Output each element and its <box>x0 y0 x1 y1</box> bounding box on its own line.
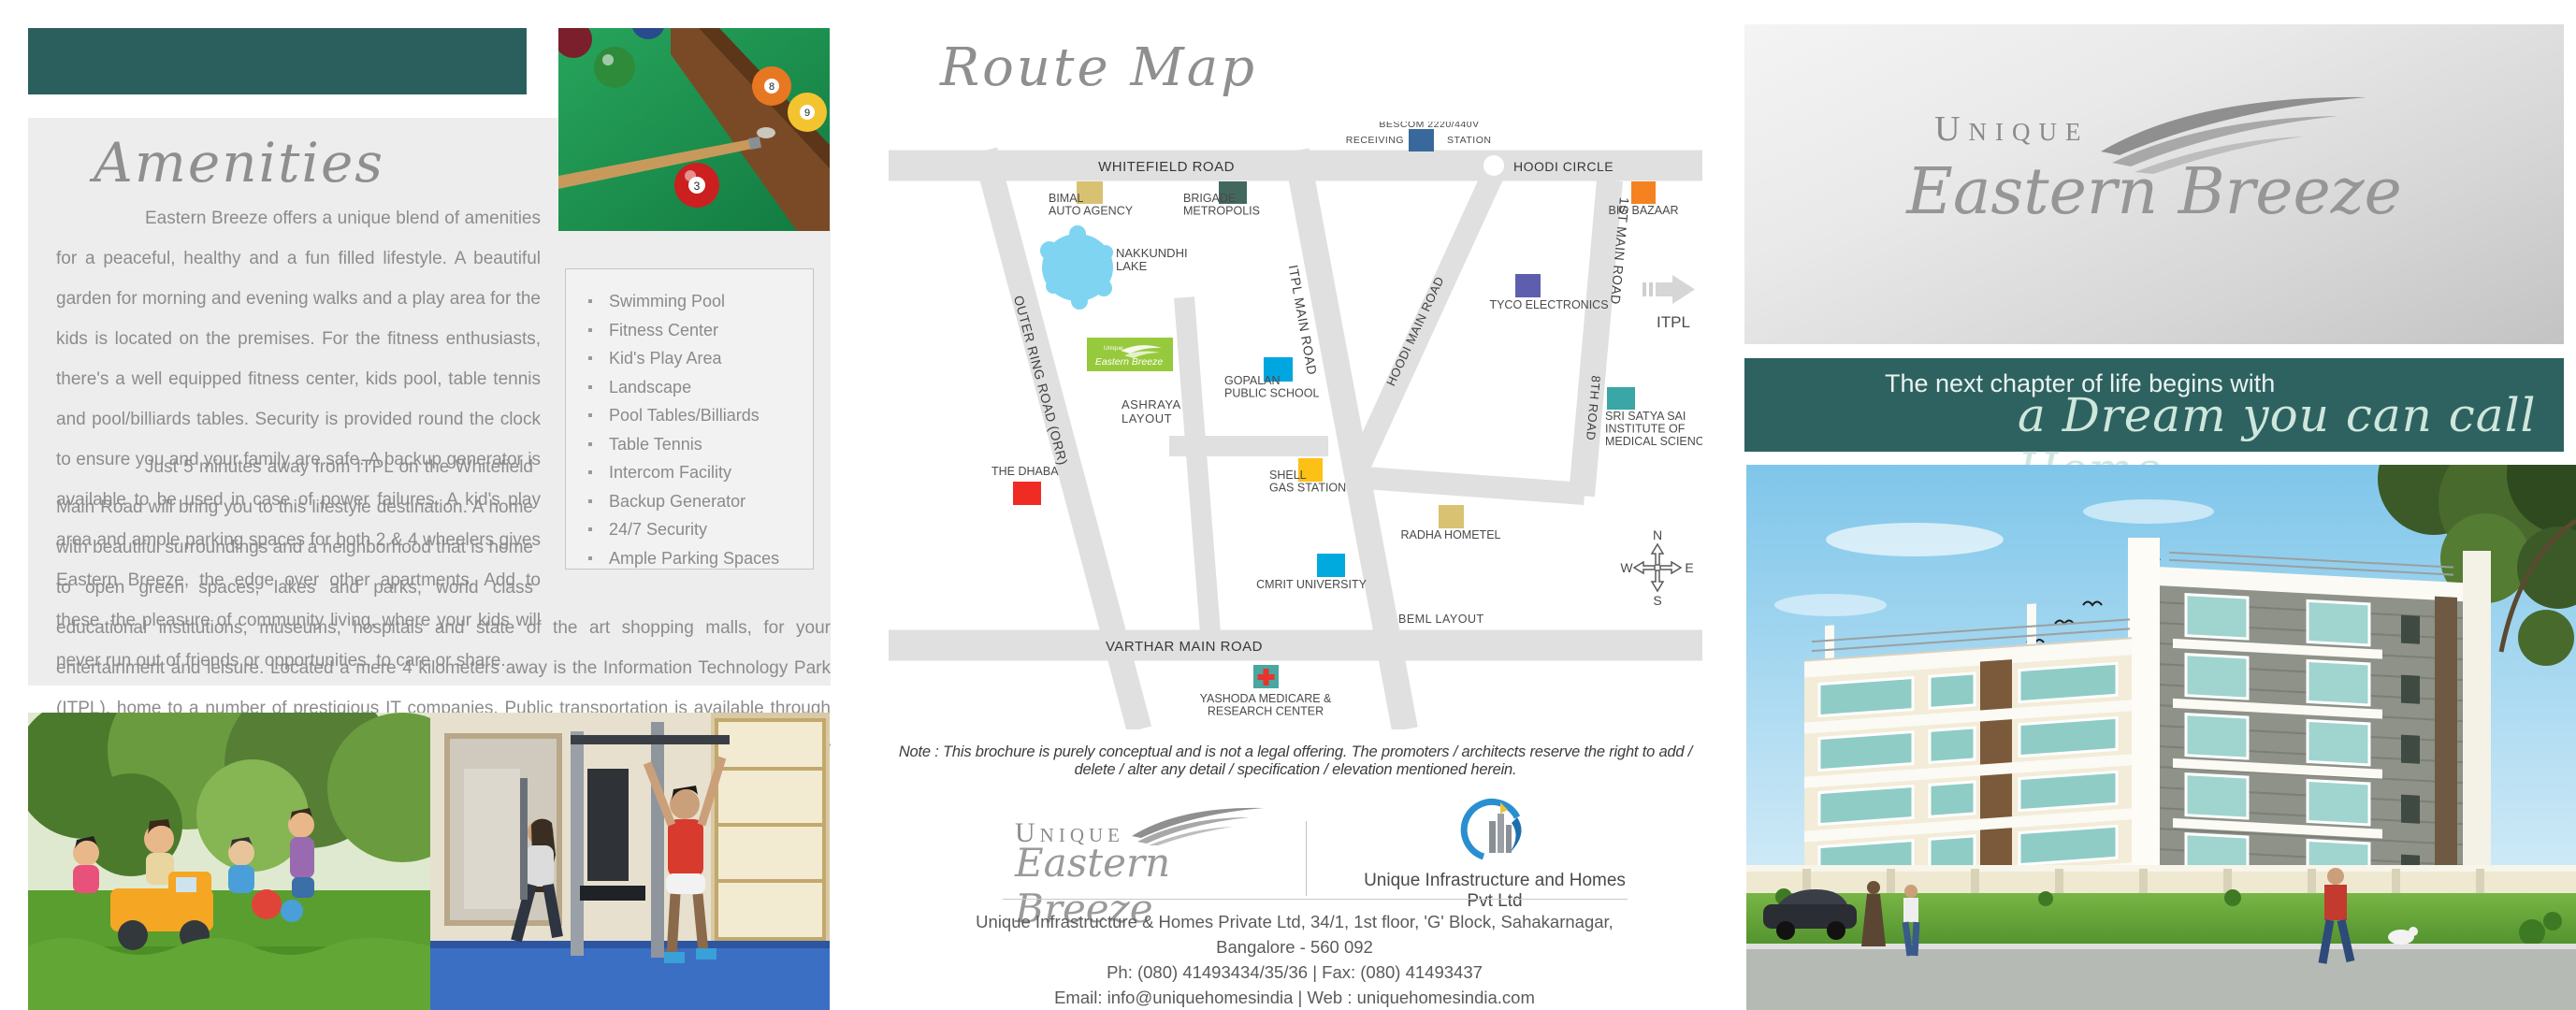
svg-text:9: 9 <box>804 108 810 119</box>
fitness-center-photo <box>430 713 830 1010</box>
map-label-bescom-label-2: RECEIVING <box>1346 135 1404 146</box>
building-rendering <box>1746 465 2576 1010</box>
compass-west-label: W <box>1620 560 1633 575</box>
landmark-label-sri-satya-sai-institute: SRI SATYA SAIINSTITUTE OFMEDICAL SCIENCE… <box>1605 410 1702 448</box>
amenity-item: Swimming Pool <box>586 292 813 311</box>
kids-play-area-photo <box>28 713 430 1010</box>
footer-divider <box>1306 821 1307 896</box>
map-label-varthar-road-label: VARTHAR MAIN ROAD <box>1106 639 1263 655</box>
route-map: NAKKUNDHILAKEBIMALAUTO AGENCYBRIGADEMETR… <box>889 122 1702 729</box>
company-mark-icon <box>1455 797 1534 864</box>
footer-email-line: Email: info@uniquehomesindia | Web : uni… <box>939 985 1650 1010</box>
building-illustration <box>1746 465 2576 1010</box>
route-map-title: Route Map <box>940 37 1257 98</box>
footer-address-line: Unique Infrastructure & Homes Private Lt… <box>939 909 1650 959</box>
footer-company-logo: Unique Infrastructure and Homes Pvt Ltd <box>1354 797 1635 912</box>
landmark-label-brigade-metropolis: BRIGADEMETROPOLIS <box>1183 192 1260 218</box>
site-label: Eastern Breeze <box>1095 356 1164 368</box>
site-label-small: Unique <box>1104 345 1123 352</box>
road-eighth-road-connector <box>1352 477 1585 494</box>
amenity-item: Fitness Center <box>586 321 813 340</box>
landmark-label-cmrit-university: CMRIT UNIVERSITY <box>1256 578 1367 591</box>
hoodi-circle-icon <box>1483 155 1504 176</box>
compass-north-label: N <box>1653 527 1662 542</box>
map-label-bescom-label-1: BESCOM 2220/440V <box>1379 122 1479 130</box>
road <box>1746 947 2576 1010</box>
brochure-page: 8 9 3 Amenities Eastern Breeze offers a … <box>0 0 2576 1010</box>
svg-text:3: 3 <box>694 180 701 193</box>
route-map-svg: NAKKUNDHILAKEBIMALAUTO AGENCYBRIGADEMETR… <box>889 122 1702 729</box>
footer-phone-line: Ph: (080) 41493434/35/36 | Fax: (080) 41… <box>939 959 1650 985</box>
landmark-label-yashoda-medicare: YASHODA MEDICARE &RESEARCH CENTER <box>1200 692 1332 718</box>
tagline-bar: The next chapter of life begins with a D… <box>1744 358 2564 452</box>
map-label-whitefield-road-label: WHITEFIELD ROAD <box>1098 159 1235 175</box>
cover-logo-box: Unique Eastern Breeze <box>1744 24 2564 344</box>
company-logo-label: Unique Infrastructure and Homes Pvt Ltd <box>1354 871 1635 912</box>
map-label-bescom-label-3: STATION <box>1447 135 1491 146</box>
kids-illustration <box>28 713 430 1010</box>
landmark-label-tyco-electronics: TYCO ELECTRONICS <box>1489 298 1608 311</box>
footer-rule <box>1003 899 1628 900</box>
map-label-beml-layout-label: BEML LAYOUT <box>1398 613 1484 626</box>
compass-east-label: E <box>1685 560 1693 575</box>
gym-illustration <box>430 713 830 1010</box>
cover-brand-name: Eastern Breeze <box>1744 155 2564 229</box>
amenity-item: Landscape <box>586 378 813 397</box>
landmark-the-dhaba <box>1013 482 1041 505</box>
landmark-label-radha-hometel: RADHA HOMETEL <box>1401 528 1501 541</box>
billiards-illustration: 8 9 3 <box>558 28 830 231</box>
compass-icon <box>1634 544 1681 591</box>
amenity-item: 24/7 Security <box>586 520 813 540</box>
road-ashraya-road-vertical <box>1184 297 1211 645</box>
landmark-sri-satya-sai-institute <box>1607 387 1635 410</box>
landmark-cmrit-university <box>1317 554 1345 577</box>
map-label-hoodi-circle-label: HOODI CIRCLE <box>1513 159 1614 174</box>
amenities-list-box: Swimming PoolFitness CenterKid's Play Ar… <box>565 268 814 570</box>
amenity-item: Intercom Facility <box>586 463 813 483</box>
amenities-title: Amenities <box>94 131 384 195</box>
landmark-tyco-electronics <box>1515 274 1541 297</box>
map-label-ashraya-layout-label: ASHRAYALAYOUT <box>1122 397 1181 426</box>
landmark-big-bazaar <box>1631 181 1656 204</box>
landmark-radha-hometel <box>1439 505 1464 528</box>
lake-label: NAKKUNDHILAKE <box>1116 246 1188 273</box>
amenity-item: Backup Generator <box>586 492 813 512</box>
landmark-bescom-station <box>1409 129 1434 151</box>
itpl-arrow-label: ITPL <box>1657 313 1690 331</box>
teal-header-bar <box>28 28 527 94</box>
amenities-list: Swimming PoolFitness CenterKid's Play Ar… <box>586 292 813 569</box>
eastern-breeze-site: Unique Eastern Breeze <box>1087 338 1173 371</box>
disclaimer-note: Note : This brochure is purely conceptua… <box>889 743 1702 779</box>
landmark-label-the-dhaba: THE DHABA <box>991 465 1059 478</box>
amenity-item: Ample Parking Spaces <box>586 549 813 569</box>
amenity-item: Kid's Play Area <box>586 349 813 368</box>
svg-text:8: 8 <box>769 81 774 93</box>
amenity-item: Pool Tables/Billiards <box>586 406 813 426</box>
itpl-arrow-icon: ITPL <box>1643 275 1695 331</box>
cover-brand-word: Unique <box>1934 109 2089 149</box>
road-first-main-road <box>1582 180 1610 496</box>
compass-south-label: S <box>1653 593 1661 608</box>
landmark-label-gopalan-public-school: GOPALANPUBLIC SCHOOL <box>1224 374 1319 400</box>
billiards-photo: 8 9 3 <box>558 28 830 231</box>
map-roads <box>889 151 1702 729</box>
cover-logo: Unique Eastern Breeze <box>1744 90 2564 229</box>
footer-contact-block: Unique Infrastructure & Homes Private Lt… <box>939 909 1650 1010</box>
amenity-item: Table Tennis <box>586 435 813 454</box>
